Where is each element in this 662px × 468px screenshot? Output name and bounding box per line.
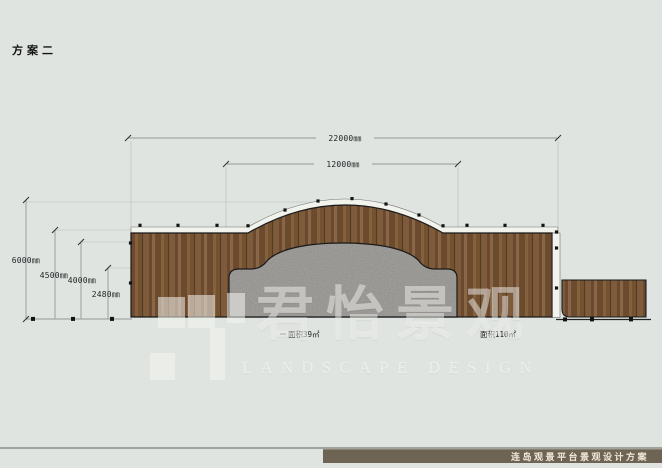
dim-label-height-arch: 4000㎜ (68, 276, 96, 285)
footer-title-bar: 连岛观景平台景观设计方案 (323, 449, 662, 463)
dim-label-height-base: 2480㎜ (92, 290, 120, 299)
plan-drawing: 22000㎜ 12000㎜ 6000㎜ 4500㎜ 4000㎜ 2480㎜ 面积… (0, 0, 662, 468)
dim-label-top-width: 22000㎜ (328, 134, 361, 143)
area-label-deck: 面积110㎡ (480, 329, 517, 339)
drawing-sheet: 方案二 (0, 0, 662, 468)
dim-label-height-total: 6000㎜ (12, 256, 40, 265)
project-title: 连岛观景平台景观设计方案 (511, 450, 649, 463)
dim-label-height-deck: 4500㎜ (40, 271, 68, 280)
deck-fascia-right (552, 233, 560, 318)
area-label-stone: 面积39㎡ (288, 329, 320, 339)
right-walkway (562, 280, 646, 317)
dim-label-arch-width: 12000㎜ (326, 160, 359, 169)
